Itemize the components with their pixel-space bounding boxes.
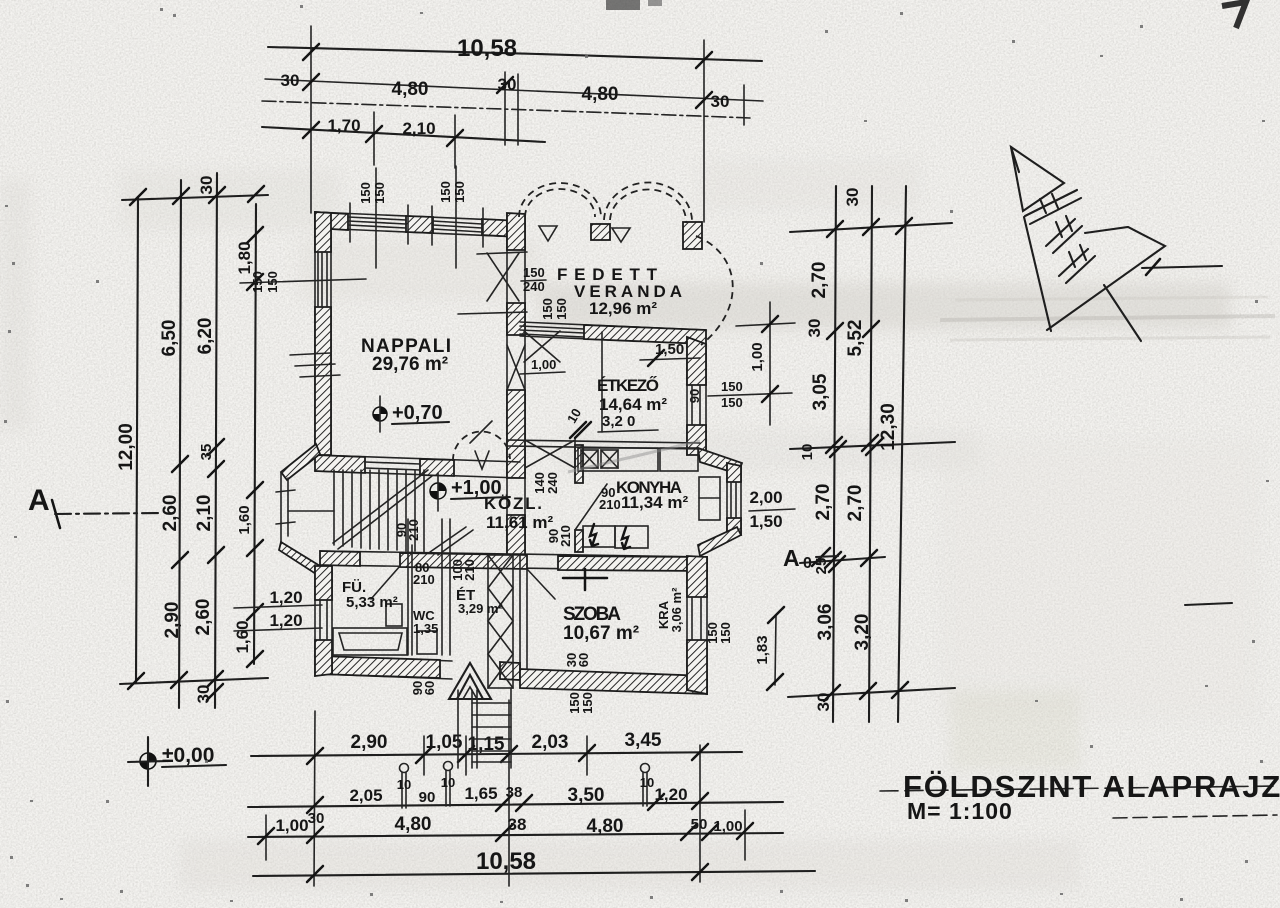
svg-text:1,20: 1,20	[269, 611, 302, 630]
svg-text:1,15: 1,15	[468, 734, 505, 755]
svg-text:30: 30	[308, 810, 325, 827]
svg-text:1,00: 1,00	[531, 357, 556, 372]
svg-text:2,90: 2,90	[162, 602, 183, 639]
svg-text:10,58: 10,58	[457, 35, 517, 62]
svg-text:3,45: 3,45	[625, 730, 662, 751]
svg-text:150: 150	[523, 265, 545, 280]
svg-text:150: 150	[721, 379, 743, 394]
svg-text:90: 90	[419, 789, 436, 806]
svg-text:30: 30	[194, 685, 213, 704]
svg-text:SZOBA: SZOBA	[563, 604, 621, 625]
svg-text:1,65: 1,65	[464, 784, 497, 803]
svg-text:4,80: 4,80	[587, 816, 624, 837]
svg-text:3,29 m²: 3,29 m²	[458, 601, 503, 616]
svg-text:150: 150	[540, 298, 555, 320]
svg-text:150: 150	[554, 298, 569, 320]
svg-text:A: A	[28, 484, 50, 517]
svg-text:210: 210	[462, 559, 477, 581]
svg-text:150: 150	[452, 181, 467, 203]
svg-text:10,58: 10,58	[476, 848, 536, 875]
svg-text:11,61 m²: 11,61 m²	[486, 513, 553, 532]
svg-text:1,00: 1,00	[275, 816, 308, 835]
svg-text:150: 150	[718, 622, 733, 644]
svg-text:±0,00: ±0,00	[162, 744, 214, 767]
svg-text:30: 30	[197, 176, 216, 195]
svg-text:2,03: 2,03	[532, 732, 569, 753]
svg-text:10: 10	[640, 775, 654, 790]
svg-text:12,00: 12,00	[116, 423, 137, 471]
svg-text:150: 150	[358, 182, 373, 204]
svg-text:60: 60	[422, 681, 437, 695]
svg-text:2,60: 2,60	[193, 599, 214, 636]
svg-text:2,00: 2,00	[749, 488, 782, 507]
svg-text:0: 0	[803, 555, 812, 572]
svg-text:30: 30	[281, 71, 300, 90]
svg-text:210: 210	[413, 572, 435, 587]
svg-text:A: A	[783, 545, 800, 571]
svg-text:2,05: 2,05	[349, 786, 382, 805]
svg-text:150: 150	[250, 271, 265, 293]
svg-text:11,34 m²: 11,34 m²	[621, 493, 688, 512]
svg-text:30: 30	[843, 188, 862, 207]
svg-text:12,30: 12,30	[878, 403, 899, 451]
svg-text:5,33 m²: 5,33 m²	[346, 594, 398, 611]
svg-text:50: 50	[691, 816, 708, 833]
svg-text:2,60: 2,60	[160, 495, 181, 532]
svg-text:5,52: 5,52	[845, 320, 866, 357]
svg-text:29,76 m²: 29,76 m²	[372, 354, 448, 375]
svg-text:2,70: 2,70	[845, 485, 866, 522]
svg-text:210: 210	[558, 525, 573, 547]
svg-text:4,80: 4,80	[392, 79, 429, 100]
svg-text:150: 150	[265, 271, 280, 293]
svg-text:150: 150	[721, 395, 743, 410]
svg-text:1,20: 1,20	[269, 588, 302, 607]
svg-text:210: 210	[406, 519, 421, 541]
svg-text:3,06 m²: 3,06 m²	[669, 587, 684, 632]
svg-text:60: 60	[576, 653, 591, 667]
svg-text:KÖZL.: KÖZL.	[484, 494, 542, 513]
svg-text:+0,70: +0,70	[392, 402, 443, 424]
svg-text:2,10: 2,10	[402, 119, 435, 138]
svg-text:30: 30	[814, 693, 833, 712]
svg-text:240: 240	[545, 472, 560, 494]
svg-text:1,00: 1,00	[749, 342, 766, 371]
svg-text:3,06: 3,06	[815, 604, 836, 641]
svg-text:10: 10	[799, 444, 816, 461]
svg-text:10: 10	[397, 777, 411, 792]
svg-text:30: 30	[711, 92, 730, 111]
svg-text:4,80: 4,80	[395, 814, 432, 835]
svg-text:35: 35	[198, 444, 215, 461]
svg-text:2,10: 2,10	[194, 495, 215, 532]
svg-text:38: 38	[508, 815, 527, 834]
svg-text:30: 30	[805, 319, 824, 338]
svg-text:6,20: 6,20	[195, 318, 216, 355]
svg-text:2,70: 2,70	[813, 484, 834, 521]
svg-text:1,60: 1,60	[236, 505, 253, 534]
svg-text:25: 25	[813, 558, 830, 575]
svg-text:1,00: 1,00	[713, 818, 742, 835]
svg-text:2,90: 2,90	[351, 732, 388, 753]
svg-text:4,80: 4,80	[582, 84, 619, 105]
svg-text:1,60: 1,60	[233, 620, 252, 653]
svg-text:150: 150	[372, 182, 387, 204]
svg-text:1,70: 1,70	[327, 116, 360, 135]
svg-text:3,50: 3,50	[568, 785, 605, 806]
svg-text:14,64 m²: 14,64 m²	[599, 395, 667, 414]
svg-text:1,35: 1,35	[413, 621, 438, 636]
svg-text:6,50: 6,50	[159, 320, 180, 357]
svg-text:3,20: 3,20	[852, 614, 873, 651]
svg-text:3,05: 3,05	[810, 373, 831, 410]
svg-text:150: 150	[580, 692, 595, 714]
svg-text:3,2 0: 3,2 0	[602, 413, 635, 430]
svg-text:M= 1:100: M= 1:100	[907, 798, 1013, 824]
svg-text:1,80: 1,80	[235, 241, 254, 274]
svg-text:1,83: 1,83	[754, 635, 771, 664]
svg-text:10: 10	[441, 775, 455, 790]
svg-text:150: 150	[438, 181, 453, 203]
svg-text:2,70: 2,70	[809, 262, 830, 299]
svg-text:30: 30	[498, 75, 517, 94]
svg-text:ÉTKEZŐ: ÉTKEZŐ	[597, 376, 659, 395]
svg-text:1,20: 1,20	[654, 785, 687, 804]
svg-text:210: 210	[599, 497, 621, 512]
svg-text:38: 38	[506, 784, 523, 801]
svg-text:12,96 m²: 12,96 m²	[589, 299, 657, 318]
svg-text:10,67 m²: 10,67 m²	[563, 623, 639, 644]
svg-text:1,50: 1,50	[749, 512, 782, 531]
